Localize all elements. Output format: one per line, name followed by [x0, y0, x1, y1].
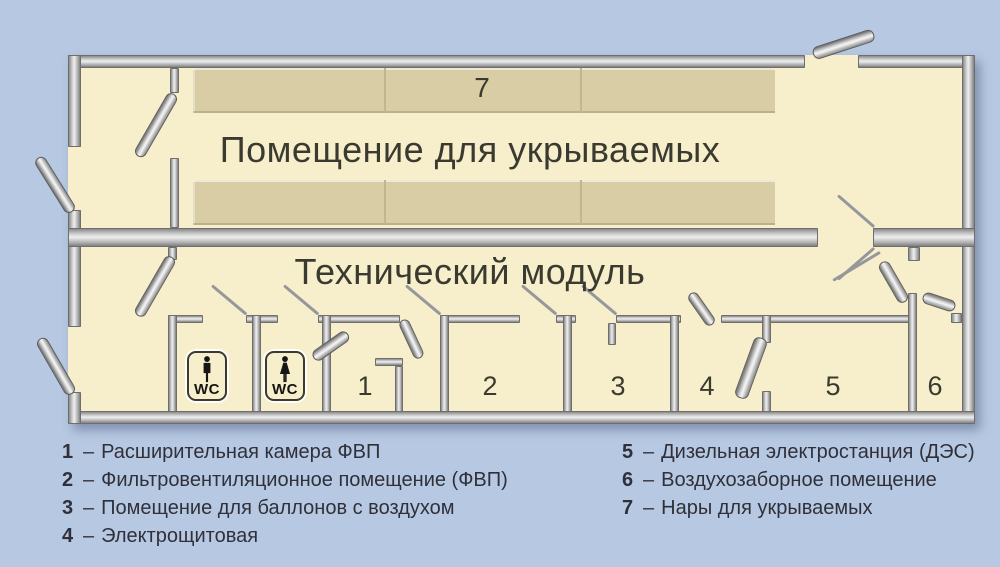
legend-text: Фильтровентиляционное помещение (ФВП) [101, 467, 508, 493]
legend-item: 2–Фильтровентиляционное помещение (ФВП) [62, 467, 508, 493]
room-number-label: 6 [915, 371, 955, 402]
inter-module-passage-floor [818, 228, 873, 247]
wall [762, 391, 771, 412]
wall [375, 358, 403, 366]
legend-item: 3–Помещение для баллонов с воздухом [62, 495, 455, 521]
legend-separator: – [643, 467, 654, 493]
bunk-divider [580, 180, 582, 225]
legend-number: 5 [622, 439, 637, 465]
legend-text: Помещение для баллонов с воздухом [101, 495, 454, 521]
wall [246, 315, 278, 323]
legend-text: Расширительная камера ФВП [101, 439, 380, 465]
bunk-divider [384, 180, 386, 225]
wall [68, 228, 818, 247]
wall [608, 323, 616, 345]
wall [951, 313, 962, 323]
shelter-floorplan-diagram: WC WC 7 Помещение для укрываемых Техниче… [0, 0, 1000, 567]
wall [873, 228, 975, 247]
wall [858, 55, 975, 68]
room-number-label: 1 [345, 371, 385, 402]
legend-text: Электрощитовая [101, 523, 258, 549]
wc-label: WC [272, 382, 298, 397]
legend-text: Дизельная электростанция (ДЭС) [661, 439, 975, 465]
man-icon [198, 356, 216, 383]
wall [252, 315, 261, 412]
legend-number: 7 [622, 495, 637, 521]
legend-item: 4–Электрощитовая [62, 523, 258, 549]
room-number-label: 3 [598, 371, 638, 402]
legend-item: 1–Расширительная камера ФВП [62, 439, 380, 465]
wc-room-sign-women: WC [265, 351, 305, 401]
legend-item: 7–Нары для укрываемых [622, 495, 873, 521]
legend-text: Воздухозаборное помещение [661, 467, 937, 493]
wall [440, 315, 520, 323]
wall [68, 55, 805, 68]
legend-number: 3 [62, 495, 77, 521]
wc-label: WC [194, 382, 220, 397]
wall [68, 55, 81, 147]
legend-item: 6–Воздухозаборное помещение [622, 467, 937, 493]
wall [395, 366, 403, 412]
technical-module-title: Технический модуль [90, 251, 850, 293]
room-number-label: 2 [470, 371, 510, 402]
wall [721, 315, 913, 323]
legend-separator: – [83, 495, 94, 521]
wall [170, 68, 179, 93]
legend-number: 4 [62, 523, 77, 549]
woman-icon [276, 356, 294, 383]
bunk-divider [580, 68, 582, 113]
legend-separator: – [643, 439, 654, 465]
legend-separator: – [83, 439, 94, 465]
upper-module-title: Помещение для укрываемых [90, 129, 850, 171]
legend-separator: – [83, 523, 94, 549]
legend-separator: – [83, 467, 94, 493]
wall [68, 392, 81, 424]
bunk-row-bottom [193, 180, 775, 225]
legend-item: 5–Дизельная электростанция (ДЭС) [622, 439, 975, 465]
legend-separator: – [643, 495, 654, 521]
legend-number: 6 [622, 467, 637, 493]
wall [440, 315, 449, 412]
wall [68, 411, 975, 424]
room-number-label: 4 [687, 371, 727, 402]
legend-number: 1 [62, 439, 77, 465]
wc-room-sign-men: WC [187, 351, 227, 401]
legend-number: 2 [62, 467, 77, 493]
wall [670, 315, 679, 412]
wall [168, 315, 177, 412]
wall [322, 315, 331, 412]
legend-text: Нары для укрываемых [661, 495, 872, 521]
doorway-floor [805, 55, 858, 68]
wall [908, 247, 920, 261]
bunk-number-label: 7 [384, 72, 580, 104]
room-number-label: 5 [813, 371, 853, 402]
wall [563, 315, 572, 412]
